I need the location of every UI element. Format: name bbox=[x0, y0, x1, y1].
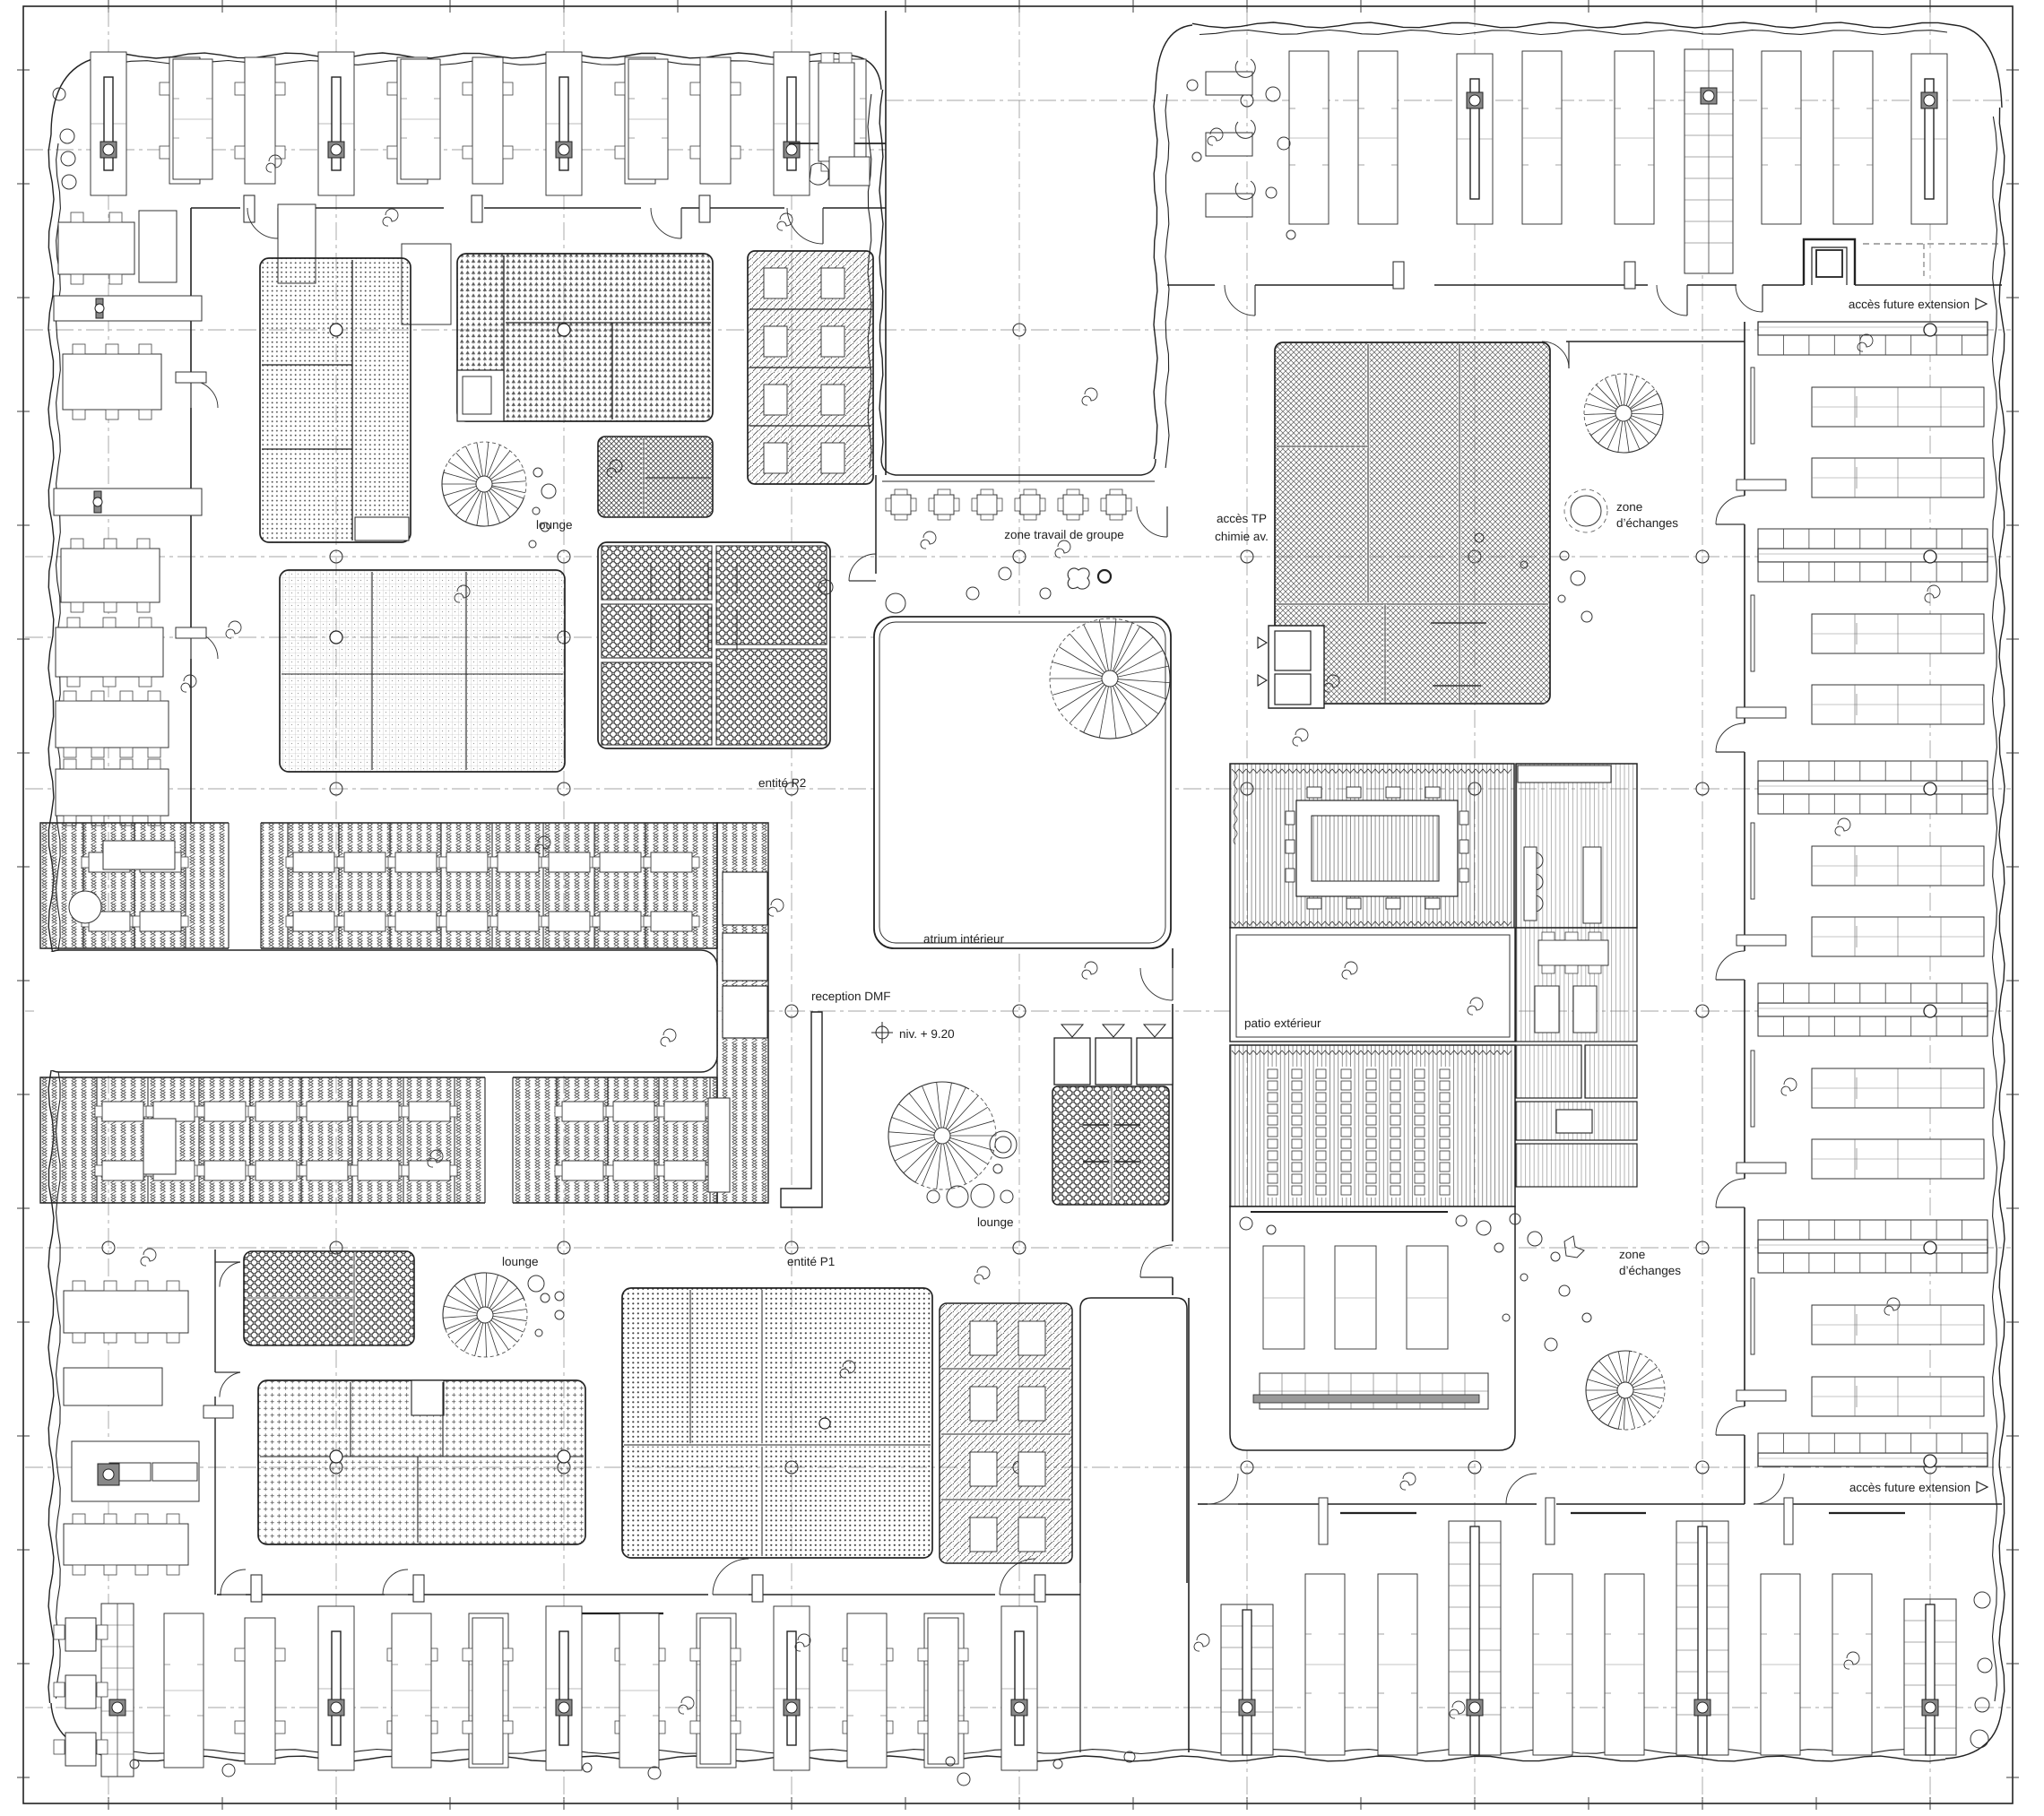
svg-text:lounge: lounge bbox=[977, 1215, 1014, 1229]
svg-text:d’échanges: d’échanges bbox=[1616, 516, 1678, 530]
svg-text:accès future extension: accès future extension bbox=[1849, 1481, 1970, 1494]
svg-text:zone: zone bbox=[1616, 500, 1642, 514]
svg-text:zone travail de groupe: zone travail de groupe bbox=[1004, 528, 1124, 541]
svg-text:entité P1: entité P1 bbox=[787, 1255, 835, 1268]
svg-text:atrium intérieur: atrium intérieur bbox=[923, 932, 1005, 946]
svg-text:d’échanges: d’échanges bbox=[1619, 1264, 1681, 1277]
svg-text:niv. + 9.20: niv. + 9.20 bbox=[899, 1027, 955, 1041]
svg-text:patio extérieur: patio extérieur bbox=[1244, 1016, 1321, 1030]
svg-text:zone: zone bbox=[1619, 1248, 1645, 1261]
svg-text:reception DMF: reception DMF bbox=[811, 990, 891, 1003]
svg-text:entité P2: entité P2 bbox=[758, 776, 806, 790]
svg-text:lounge: lounge bbox=[536, 518, 573, 532]
svg-text:chimie av.: chimie av. bbox=[1215, 530, 1269, 543]
svg-text:accès future extension: accès future extension bbox=[1849, 298, 1970, 311]
svg-text:lounge: lounge bbox=[502, 1255, 539, 1268]
svg-text:accès TP: accès TP bbox=[1217, 512, 1267, 525]
